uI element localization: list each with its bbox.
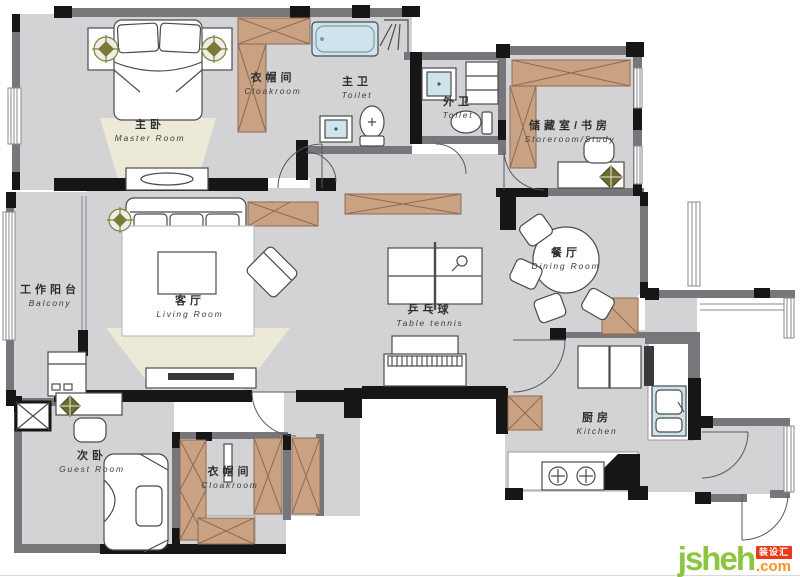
washing-machine bbox=[48, 352, 86, 396]
toilet1-sink bbox=[320, 116, 352, 142]
label-study: 储藏室/书房 Storeroom/Study bbox=[525, 120, 616, 145]
label-cloakroom-top: 衣帽间 Cloakroom bbox=[244, 72, 301, 97]
connector-wardrobe bbox=[292, 438, 320, 514]
living-sideboard bbox=[248, 202, 318, 226]
label-living-room: 客厅 Living Room bbox=[156, 295, 223, 320]
label-master-cn: 主卧 bbox=[115, 119, 186, 132]
tv-bench bbox=[146, 368, 256, 388]
jsheh-logo: jsheh 装设汇 .com bbox=[678, 544, 792, 574]
label-master-en: Master Room bbox=[115, 132, 186, 144]
jsheh-logo-text: jsheh bbox=[678, 544, 754, 574]
label-master-toilet: 主卫 Toilet bbox=[342, 76, 373, 101]
toilet1-wc bbox=[360, 106, 384, 146]
label-table-tennis: 乒乓球 Table tennis bbox=[396, 304, 463, 329]
label-balcony: 工作阳台 Balcony bbox=[20, 284, 80, 309]
mop-sink bbox=[16, 402, 50, 430]
table-tennis-table bbox=[388, 242, 482, 310]
hall-cabinet bbox=[345, 194, 461, 214]
stove bbox=[542, 462, 604, 490]
master-dresser bbox=[126, 168, 208, 190]
bathtub bbox=[312, 22, 378, 56]
coffee-table bbox=[158, 252, 216, 294]
floorplan-stage: 主卧 Master Room 衣帽间 Cloakroom 主卫 Toilet 外… bbox=[0, 0, 800, 576]
label-master-room: 主卧 Master Room bbox=[115, 119, 186, 144]
label-guest-room: 次卧 Guest Room bbox=[59, 450, 125, 475]
piano bbox=[384, 336, 466, 386]
jsheh-logo-tld: .com bbox=[756, 559, 791, 574]
label-cloakroom-bottom: 衣帽间 Cloakroom bbox=[201, 466, 258, 491]
kitchen-corner-cabinet bbox=[508, 396, 542, 430]
label-kitchen: 厨房 Kitchen bbox=[577, 412, 618, 437]
jsheh-logo-side: 装设汇 .com bbox=[756, 546, 792, 574]
label-dining-room: 餐厅 Dining Room bbox=[532, 247, 601, 272]
kitchen-sink bbox=[652, 386, 686, 436]
label-guest-toilet: 外卫 Toilet bbox=[443, 96, 474, 121]
floorplan-drawing bbox=[0, 0, 800, 576]
